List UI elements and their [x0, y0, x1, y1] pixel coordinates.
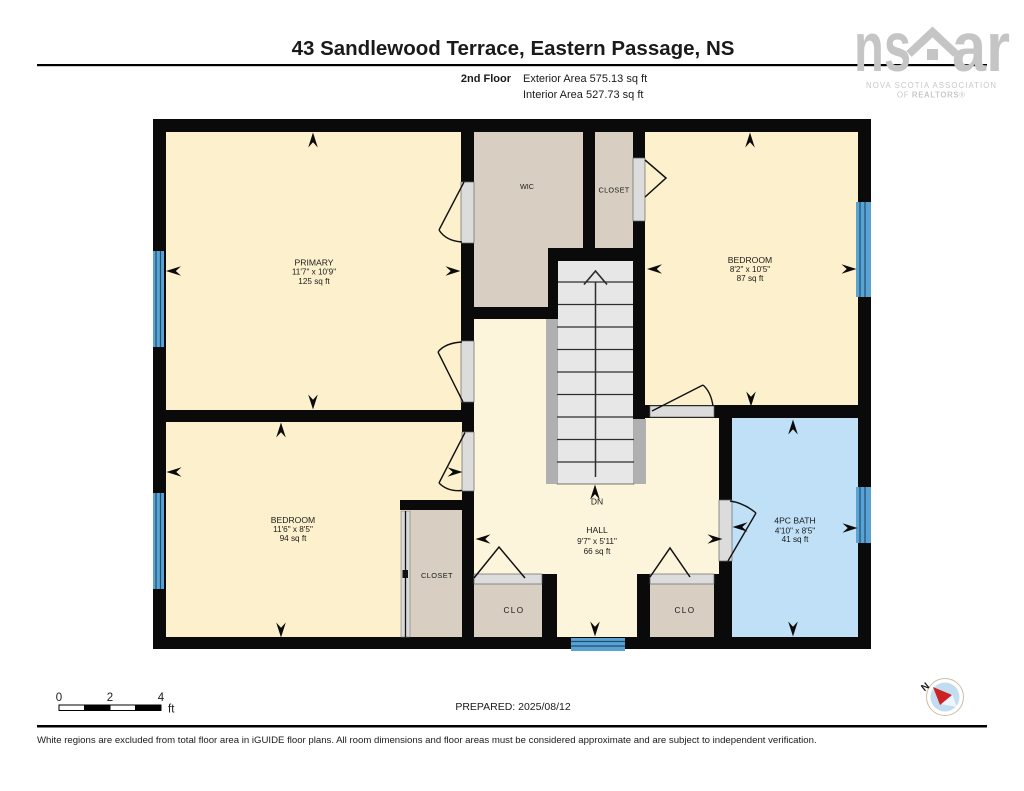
svg-text:OF REALTORS®: OF REALTORS®: [897, 91, 965, 100]
svg-text:CLO: CLO: [674, 606, 695, 615]
svg-text:ar: ar: [952, 8, 1010, 86]
svg-text:41 sq ft: 41 sq ft: [782, 535, 810, 544]
svg-text:0: 0: [56, 692, 62, 704]
svg-text:43 Sandlewood Terrace, Eastern: 43 Sandlewood Terrace, Eastern Passage, …: [292, 37, 735, 60]
svg-text:DN: DN: [591, 497, 603, 507]
svg-text:WIC: WIC: [520, 182, 534, 191]
svg-text:PREPARED: 2025/08/12: PREPARED: 2025/08/12: [455, 701, 571, 713]
svg-text:4: 4: [158, 692, 165, 704]
svg-text:125 sq ft: 125 sq ft: [298, 277, 330, 286]
svg-text:66 sq ft: 66 sq ft: [584, 547, 612, 556]
svg-text:NOVA SCOTIA ASSOCIATION: NOVA SCOTIA ASSOCIATION: [866, 81, 996, 90]
svg-text:11'7" x 10'9": 11'7" x 10'9": [292, 268, 336, 277]
svg-text:BEDROOM: BEDROOM: [728, 255, 772, 265]
svg-text:CLOSET: CLOSET: [599, 186, 630, 195]
svg-text:CLOSET: CLOSET: [421, 571, 453, 580]
svg-text:9'7" x 5'11": 9'7" x 5'11": [577, 537, 617, 546]
svg-text:ns: ns: [854, 8, 911, 86]
svg-text:PRIMARY: PRIMARY: [295, 258, 334, 268]
svg-text:8'2" x 10'5": 8'2" x 10'5": [730, 265, 770, 274]
svg-text:2: 2: [107, 692, 113, 704]
svg-text:CLO: CLO: [503, 606, 524, 615]
svg-text:Exterior Area 575.13 sq ft: Exterior Area 575.13 sq ft: [523, 73, 647, 85]
svg-text:BEDROOM: BEDROOM: [271, 515, 315, 525]
svg-text:94 sq ft: 94 sq ft: [280, 534, 308, 543]
svg-text:4PC BATH: 4PC BATH: [774, 516, 815, 526]
svg-text:White regions are excluded fro: White regions are excluded from total fl…: [37, 735, 817, 746]
svg-text:ft: ft: [168, 704, 175, 716]
svg-text:Interior Area 527.73 sq ft: Interior Area 527.73 sq ft: [523, 89, 643, 101]
svg-text:2nd Floor: 2nd Floor: [461, 73, 512, 85]
svg-text:11'6" x 8'5": 11'6" x 8'5": [273, 525, 313, 534]
svg-text:87 sq ft: 87 sq ft: [737, 274, 765, 283]
svg-text:HALL: HALL: [586, 525, 608, 535]
